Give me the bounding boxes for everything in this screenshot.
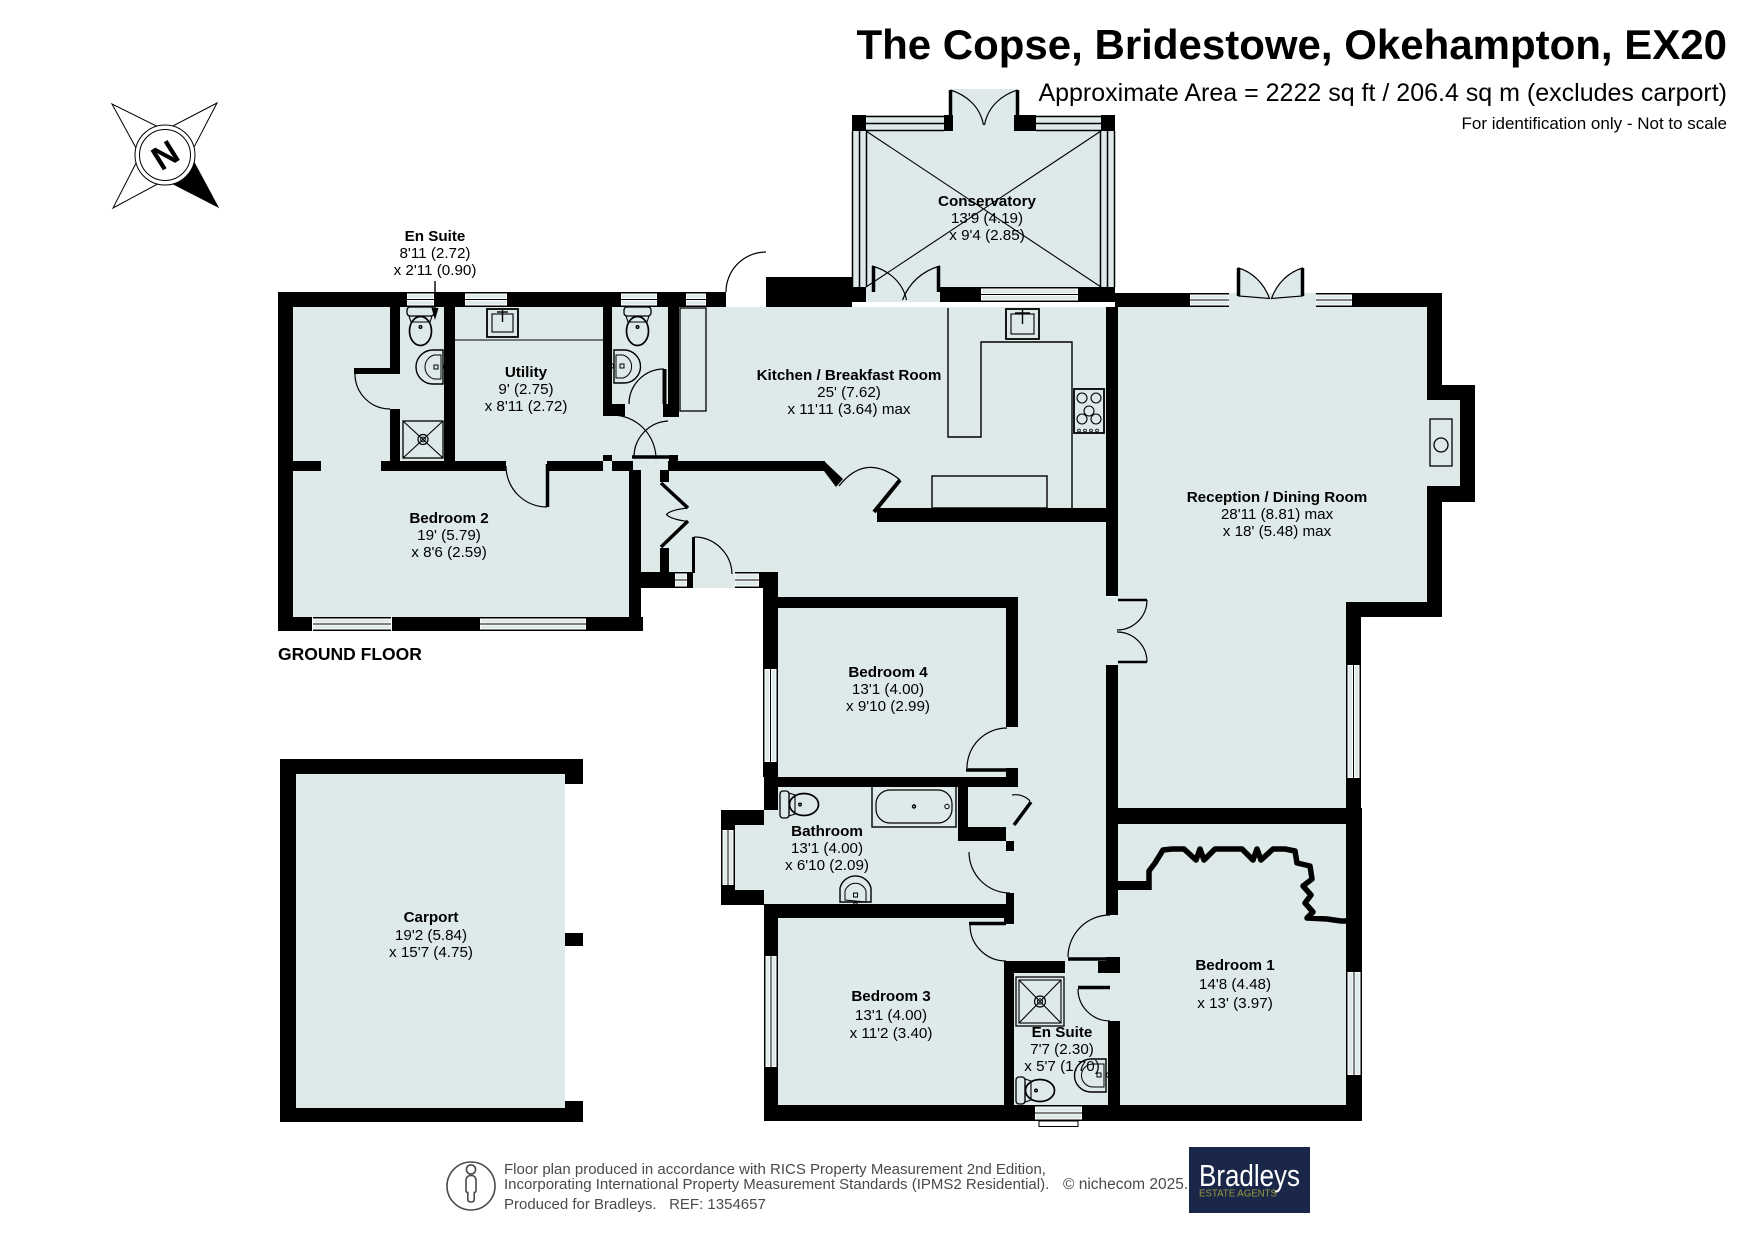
svg-text:x 2'11 (0.90): x 2'11 (0.90) — [394, 262, 477, 279]
svg-text:En Suite: En Suite — [405, 228, 466, 245]
svg-text:Reception / Dining Room: Reception / Dining Room — [1187, 489, 1368, 506]
svg-text:28'11 (8.81) max: 28'11 (8.81) max — [1221, 506, 1334, 523]
svg-text:x 15'7 (4.75): x 15'7 (4.75) — [389, 944, 473, 961]
svg-text:Bedroom 2: Bedroom 2 — [409, 510, 488, 527]
svg-text:x 5'7 (1.70): x 5'7 (1.70) — [1024, 1058, 1100, 1075]
svg-text:7'7 (2.30): 7'7 (2.30) — [1030, 1041, 1094, 1058]
svg-text:8'11 (2.72): 8'11 (2.72) — [399, 245, 470, 262]
svg-text:x 11'2 (3.40): x 11'2 (3.40) — [850, 1025, 933, 1042]
svg-text:Conservatory: Conservatory — [938, 193, 1036, 210]
svg-text:Bedroom 4: Bedroom 4 — [848, 664, 928, 681]
svg-text:Carport: Carport — [404, 909, 459, 926]
svg-text:x 18' (5.48) max: x 18' (5.48) max — [1223, 523, 1332, 540]
svg-text:9' (2.75): 9' (2.75) — [498, 381, 553, 398]
svg-text:x 11'11 (3.64) max: x 11'11 (3.64) max — [787, 401, 910, 418]
svg-text:Utility: Utility — [505, 364, 548, 381]
svg-text:x 8'6 (2.59): x 8'6 (2.59) — [411, 544, 487, 561]
svg-text:19' (5.79): 19' (5.79) — [417, 527, 481, 544]
svg-text:13'9 (4.19): 13'9 (4.19) — [951, 210, 1023, 227]
svg-text:x 9'4 (2.85): x 9'4 (2.85) — [949, 227, 1025, 244]
svg-text:Bedroom 1: Bedroom 1 — [1195, 957, 1275, 974]
svg-text:The Copse, Bridestowe, Okehamp: The Copse, Bridestowe, Okehampton, EX20 — [856, 21, 1727, 68]
svg-text:Approximate Area = 2222 sq ft: Approximate Area = 2222 sq ft / 206.4 sq… — [1038, 79, 1727, 107]
svg-text:Kitchen / Breakfast Room: Kitchen / Breakfast Room — [757, 367, 942, 384]
svg-text:ESTATE AGENTS: ESTATE AGENTS — [1199, 1188, 1277, 1200]
svg-text:x 6'10 (2.09): x 6'10 (2.09) — [785, 857, 869, 874]
svg-text:For identification only - Not: For identification only - Not to scale — [1461, 114, 1727, 133]
svg-text:25' (7.62): 25' (7.62) — [817, 384, 881, 401]
svg-text:GROUND FLOOR: GROUND FLOOR — [278, 644, 422, 664]
svg-text:13'1 (4.00): 13'1 (4.00) — [791, 840, 863, 857]
svg-text:x 8'11 (2.72): x 8'11 (2.72) — [485, 398, 568, 415]
svg-text:Bedroom 3: Bedroom 3 — [851, 988, 930, 1005]
svg-text:14'8 (4.48): 14'8 (4.48) — [1199, 976, 1271, 993]
svg-text:Bathroom: Bathroom — [791, 823, 863, 840]
svg-text:En Suite: En Suite — [1032, 1024, 1093, 1041]
svg-text:Incorporating International Pr: Incorporating International Property Mea… — [504, 1176, 1049, 1193]
svg-text:x 13' (3.97): x 13' (3.97) — [1197, 995, 1273, 1012]
svg-text:© nichecom 2025.: © nichecom 2025. — [1063, 1176, 1188, 1193]
svg-text:19'2 (5.84): 19'2 (5.84) — [395, 927, 467, 944]
svg-text:13'1 (4.00): 13'1 (4.00) — [852, 681, 924, 698]
svg-text:x 9'10 (2.99): x 9'10 (2.99) — [846, 698, 930, 715]
svg-text:Produced for Bradleys. REF:: Produced for Bradleys. REF: 1354657 — [504, 1196, 766, 1213]
svg-text:13'1 (4.00): 13'1 (4.00) — [855, 1007, 927, 1024]
